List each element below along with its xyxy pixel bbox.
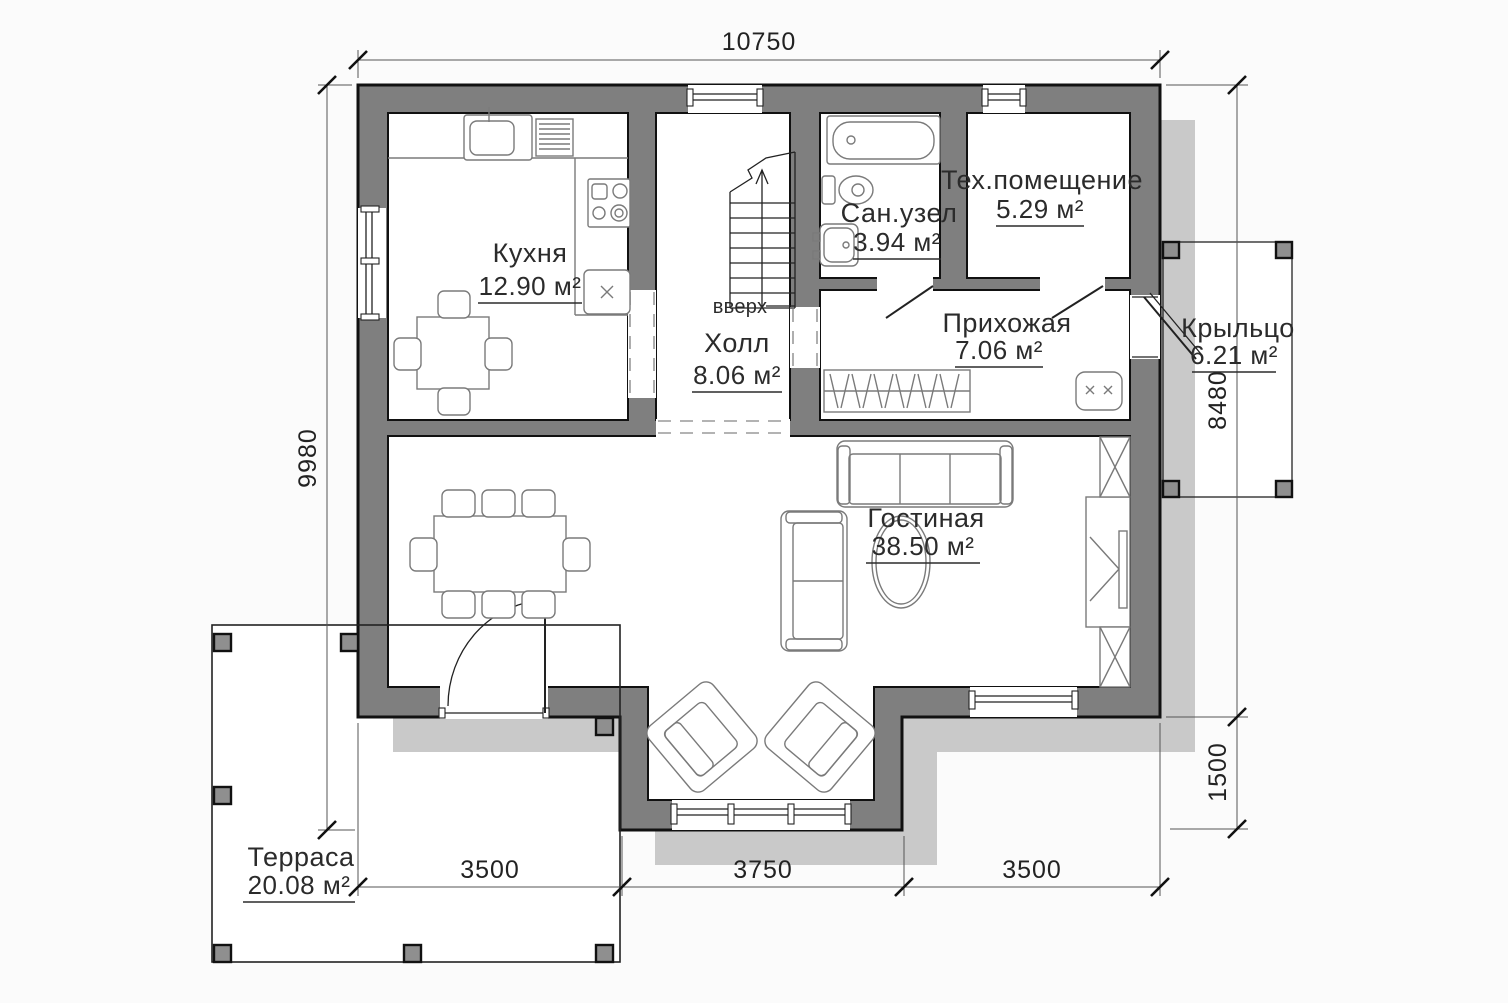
hall-name: Холл bbox=[704, 328, 770, 358]
tech-name: Тех.помещение bbox=[941, 165, 1143, 195]
dim-bottom-right-label: 3500 bbox=[1002, 856, 1062, 884]
label-kitchen: Кухня 12.90 м² bbox=[478, 238, 582, 303]
kitchen-area: 12.90 м² bbox=[479, 271, 582, 301]
terrace-area: 20.08 м² bbox=[248, 870, 351, 900]
stairs-up-note: вверх bbox=[713, 296, 768, 318]
dim-left-label: 9980 bbox=[294, 428, 322, 488]
porch-name: Крыльцо bbox=[1181, 313, 1295, 343]
sofa-small bbox=[781, 511, 847, 651]
hall-area: 8.06 м² bbox=[693, 360, 781, 390]
porch-area: 6.21 м² bbox=[1190, 340, 1278, 370]
dim-bottom-center-label: 3750 bbox=[733, 856, 793, 884]
tv-cabinet bbox=[1086, 497, 1130, 627]
dim-bottom-left-label: 3500 bbox=[460, 856, 520, 884]
tech-area: 5.29 м² bbox=[996, 194, 1084, 224]
cabinet-upper bbox=[1100, 437, 1130, 497]
shoe-cabinet bbox=[1076, 372, 1122, 410]
label-hall: Холл 8.06 м² bbox=[692, 328, 782, 392]
bathtub bbox=[827, 116, 940, 164]
dim-top-label: 10750 bbox=[722, 28, 797, 56]
label-terrace: Терраса 20.08 м² bbox=[243, 842, 355, 902]
kitchen-name: Кухня bbox=[493, 238, 568, 268]
cabinet-lower bbox=[1100, 627, 1130, 687]
washbasin bbox=[813, 224, 858, 266]
terrace-name: Терраса bbox=[247, 842, 355, 872]
stove bbox=[588, 179, 630, 227]
living-area: 38.50 м² bbox=[872, 531, 975, 561]
living-name: Гостиная bbox=[867, 503, 984, 533]
bathroom-name: Сан.узел bbox=[841, 198, 958, 228]
entry-area: 7.06 м² bbox=[955, 335, 1043, 365]
dishwasher bbox=[584, 270, 630, 314]
sofa-large bbox=[837, 441, 1013, 507]
wardrobe bbox=[824, 370, 970, 412]
bathroom-area: 3.94 м² bbox=[853, 227, 941, 257]
dim-right-lower-label: 1500 bbox=[1204, 742, 1232, 802]
entry-name: Прихожая bbox=[942, 308, 1071, 338]
floor-plan-page: 10750 9980 8480 1500 3500 3750 3500 Кухн… bbox=[0, 0, 1508, 1003]
label-living: Гостиная 38.50 м² bbox=[866, 503, 985, 563]
label-bathroom: Сан.узел 3.94 м² bbox=[841, 198, 958, 259]
floor-plan: 10750 9980 8480 1500 3500 3750 3500 Кухн… bbox=[0, 0, 1508, 1003]
dim-right-main-label: 8480 bbox=[1204, 370, 1232, 430]
label-porch: Крыльцо 6.21 м² bbox=[1181, 313, 1295, 372]
